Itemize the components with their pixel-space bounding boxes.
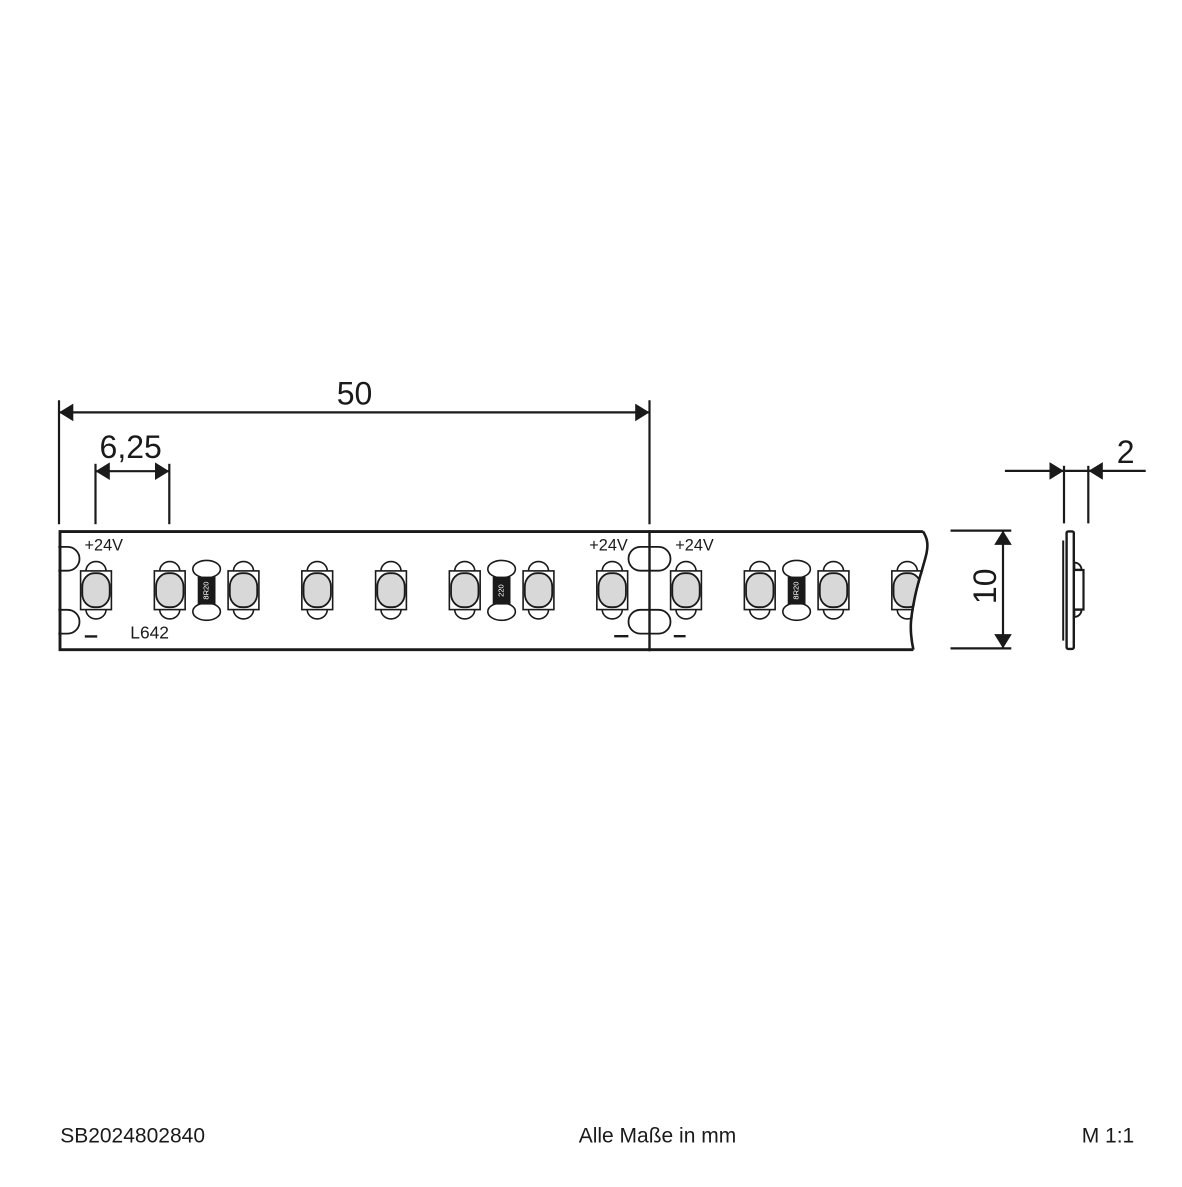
svg-text:220: 220	[497, 584, 506, 597]
svg-text:8R20: 8R20	[792, 582, 801, 600]
svg-text:+24V: +24V	[589, 536, 628, 554]
svg-text:SB2024802840: SB2024802840	[60, 1124, 205, 1147]
svg-text:6,25: 6,25	[100, 429, 162, 465]
svg-text:L642: L642	[130, 623, 169, 643]
svg-text:+24V: +24V	[675, 536, 714, 554]
svg-text:+24V: +24V	[85, 536, 124, 554]
svg-text:8R20: 8R20	[202, 582, 211, 600]
svg-text:50: 50	[337, 375, 373, 411]
svg-text:M 1:1: M 1:1	[1082, 1124, 1135, 1147]
svg-text:2: 2	[1117, 434, 1135, 470]
svg-text:Alle Maße in mm: Alle Maße in mm	[579, 1124, 737, 1147]
svg-text:10: 10	[967, 569, 1003, 605]
